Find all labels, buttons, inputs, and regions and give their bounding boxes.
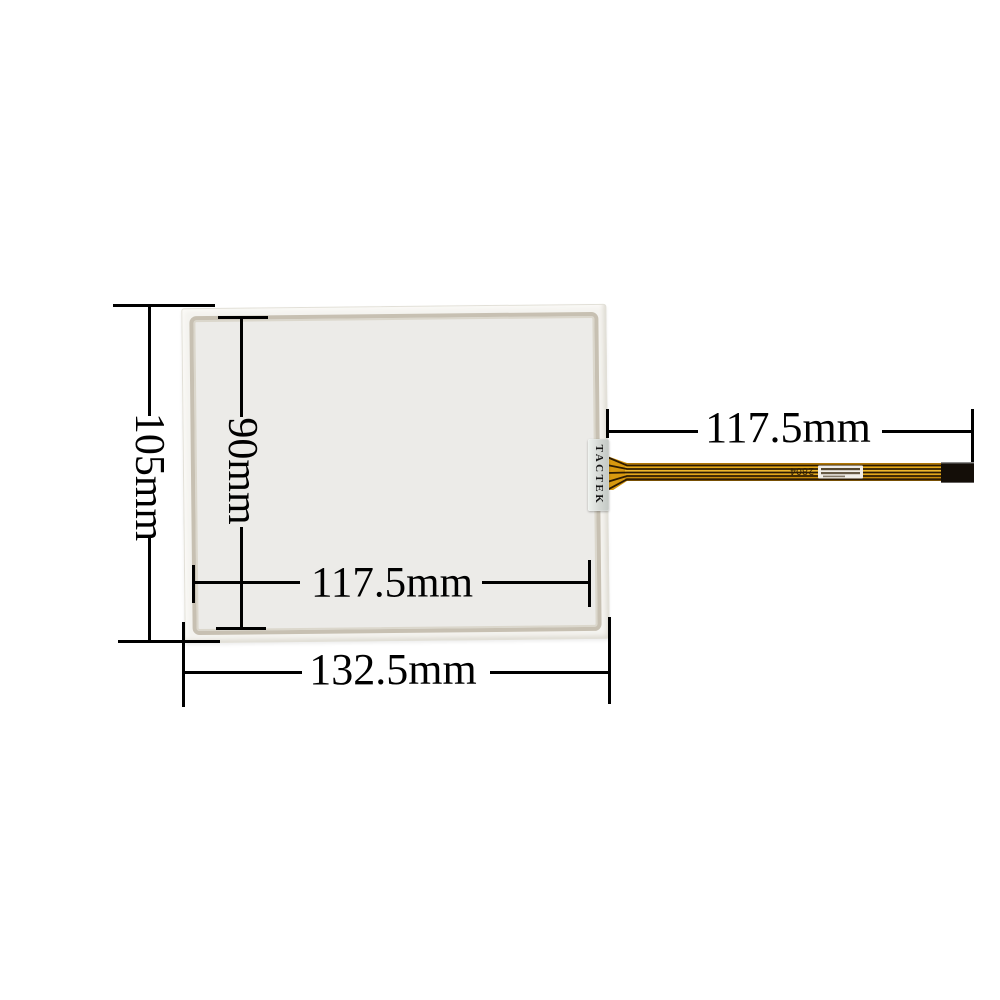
dim-105-cap-bottom — [118, 640, 220, 643]
dim-117-inner-label: 117.5mm — [311, 562, 473, 605]
dim-90-cap-top — [218, 316, 268, 319]
cable-part-number: 2804 — [790, 465, 814, 476]
dim-105-line-lower — [148, 538, 151, 643]
cable-marking-block — [818, 466, 863, 479]
dim-132-ext-right — [608, 617, 611, 704]
dim-90-label: 90mm — [221, 417, 263, 524]
dim-90-line-upper — [240, 316, 243, 417]
cable-connector — [941, 462, 974, 483]
dim-105-cap-top — [113, 304, 215, 307]
dim-132-ext-left — [182, 622, 185, 707]
product-diagram: TACTEK — [0, 0, 1000, 1000]
dim-117-inner-tick-left — [192, 565, 195, 603]
dim-105-line-upper — [148, 304, 151, 416]
dim-105-label: 105mm — [128, 413, 170, 541]
dim-cable-line-left — [606, 430, 698, 433]
dim-117-inner-line-left — [192, 581, 300, 584]
brand-label-tab: TACTEK — [588, 439, 609, 511]
dim-cable-label: 117.5mm — [705, 406, 871, 450]
dim-132-label: 132.5mm — [309, 648, 476, 692]
dim-117-inner-line-right — [482, 581, 590, 584]
dim-90-line-lower — [240, 527, 243, 630]
dim-132-line-right — [490, 671, 610, 674]
brand-label-text: TACTEK — [593, 445, 605, 506]
dim-cable-line-right — [882, 430, 974, 433]
dim-132-line-left — [182, 671, 302, 674]
dim-cable-tick-left — [606, 409, 609, 438]
